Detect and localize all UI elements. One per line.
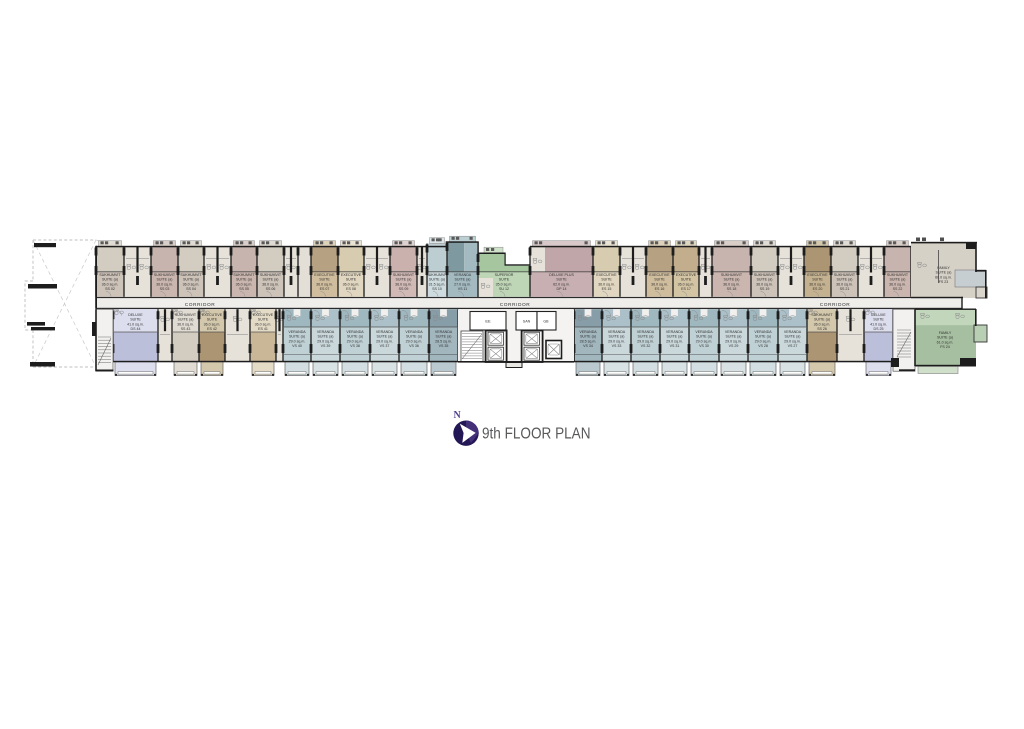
svg-text:SUITE: SUITE (319, 278, 330, 282)
svg-text:EXECUTIVE: EXECUTIVE (807, 273, 828, 277)
svg-text:36.0 sq.m.: 36.0 sq.m. (236, 282, 253, 286)
svg-text:VS 38: VS 38 (350, 344, 360, 348)
svg-text:36.0 sq.m.: 36.0 sq.m. (598, 282, 615, 286)
svg-text:SUITE: SUITE (601, 278, 612, 282)
svg-text:SUITE (a): SUITE (a) (377, 335, 393, 339)
svg-text:ES 07: ES 07 (320, 287, 330, 291)
svg-text:29.0 sq.m.: 29.0 sq.m. (755, 339, 772, 343)
svg-text:VS 36: VS 36 (409, 344, 419, 348)
svg-text:29.0 sq.m.: 29.0 sq.m. (696, 339, 713, 343)
svg-text:SUITE (a): SUITE (a) (936, 271, 952, 275)
svg-text:SUITE: SUITE (681, 278, 692, 282)
svg-text:CORRIDOR: CORRIDOR (500, 302, 531, 308)
svg-text:SAN: SAN (523, 320, 531, 324)
svg-text:VS 31: VS 31 (670, 344, 680, 348)
svg-text:SUITE (a): SUITE (a) (755, 335, 771, 339)
svg-text:SUITE (a): SUITE (a) (638, 335, 654, 339)
svg-text:SUITE: SUITE (499, 278, 510, 282)
svg-text:N: N (454, 410, 462, 421)
svg-text:SUKHUMVIT: SUKHUMVIT (754, 273, 776, 277)
svg-text:VERANDA: VERANDA (288, 330, 306, 334)
svg-text:36.0 sq.m.: 36.0 sq.m. (723, 282, 740, 286)
svg-text:SUITE (a): SUITE (a) (406, 335, 422, 339)
svg-text:VERANDA: VERANDA (579, 330, 597, 334)
svg-text:36.0 sq.m.: 36.0 sq.m. (102, 282, 119, 286)
svg-text:SS 26: SS 26 (817, 327, 827, 331)
svg-text:SUITE (a): SUITE (a) (785, 335, 801, 339)
svg-text:SUITE (a): SUITE (a) (837, 278, 853, 282)
svg-text:SUKHUMVIT: SUKHUMVIT (887, 273, 909, 277)
svg-text:SUITE (a): SUITE (a) (890, 278, 906, 282)
svg-text:SUITE: SUITE (207, 318, 218, 322)
svg-text:SUKHUMVIT: SUKHUMVIT (233, 273, 255, 277)
svg-text:VS 32: VS 32 (641, 344, 651, 348)
svg-text:66.0 sq.m.: 66.0 sq.m. (935, 275, 952, 279)
svg-text:ES 16: ES 16 (655, 287, 665, 291)
svg-text:27.0 sq.m.: 27.0 sq.m. (454, 282, 471, 286)
svg-text:36.0 sq.m.: 36.0 sq.m. (156, 282, 173, 286)
svg-text:SUKHUMVIT: SUKHUMVIT (834, 273, 856, 277)
svg-text:SS 09: SS 09 (399, 287, 409, 291)
svg-text:VERANDA: VERANDA (454, 273, 472, 277)
svg-text:ES 15: ES 15 (602, 287, 612, 291)
svg-text:VS 29: VS 29 (729, 344, 739, 348)
svg-text:SUKHUMVIT: SUKHUMVIT (99, 273, 121, 277)
svg-text:SS 03: SS 03 (160, 287, 170, 291)
svg-text:SUITE (a): SUITE (a) (937, 336, 953, 340)
svg-text:ES 20: ES 20 (813, 287, 823, 291)
svg-text:CORRIDOR: CORRIDOR (185, 302, 216, 308)
svg-text:DELUXE: DELUXE (128, 313, 143, 317)
svg-text:VERANDA: VERANDA (435, 330, 453, 334)
svg-text:SUKHUMVIT: SUKHUMVIT (180, 273, 202, 277)
svg-text:SS 43: SS 43 (181, 327, 191, 331)
svg-text:SUITE (a): SUITE (a) (263, 278, 279, 282)
svg-text:SUPERIOR: SUPERIOR (495, 273, 514, 277)
svg-text:SUITE: SUITE (812, 278, 823, 282)
svg-text:41.0 sq.m.: 41.0 sq.m. (127, 322, 144, 326)
svg-text:36.0 sq.m.: 36.0 sq.m. (678, 282, 695, 286)
svg-text:SUKHUMVIT: SUKHUMVIT (260, 273, 282, 277)
svg-text:DP 14: DP 14 (557, 287, 567, 291)
svg-text:EXECUTIVE: EXECUTIVE (649, 273, 670, 277)
svg-text:SUITE (a): SUITE (a) (102, 278, 118, 282)
svg-text:ES 08: ES 08 (346, 287, 356, 291)
svg-text:SUKHUMVIT: SUKHUMVIT (393, 273, 415, 277)
svg-text:31.5 sq.m.: 31.5 sq.m. (429, 282, 446, 286)
svg-text:SUITE: SUITE (130, 318, 141, 322)
svg-text:SUKHUMVIT: SUKHUMVIT (811, 313, 833, 317)
svg-text:29.0 sq.m.: 29.0 sq.m. (317, 339, 334, 343)
svg-text:SS 18: SS 18 (727, 287, 737, 291)
svg-text:36.0 sq.m.: 36.0 sq.m. (651, 282, 668, 286)
svg-text:EE: EE (485, 319, 491, 324)
svg-text:VS 40: VS 40 (292, 344, 302, 348)
svg-text:SUITE (a): SUITE (a) (724, 278, 740, 282)
svg-text:SUITE (a): SUITE (a) (183, 278, 199, 282)
svg-text:SUITE: SUITE (346, 278, 357, 282)
svg-text:29.0 sq.m.: 29.0 sq.m. (608, 339, 625, 343)
svg-text:VS 27: VS 27 (788, 344, 798, 348)
svg-text:SUITE (a): SUITE (a) (178, 318, 194, 322)
svg-text:36.0 sq.m.: 36.0 sq.m. (395, 282, 412, 286)
svg-text:SUITE: SUITE (556, 278, 567, 282)
svg-text:VERANDA: VERANDA (405, 330, 423, 334)
svg-text:VS 11: VS 11 (458, 287, 468, 291)
svg-text:36.0 sq.m.: 36.0 sq.m. (343, 282, 360, 286)
svg-text:ES 42: ES 42 (207, 327, 217, 331)
svg-text:SUITE (a): SUITE (a) (814, 318, 830, 322)
svg-text:36.0 sq.m.: 36.0 sq.m. (204, 322, 221, 326)
svg-text:29.0 sq.m.: 29.0 sq.m. (637, 339, 654, 343)
svg-text:SUITE (a): SUITE (a) (580, 335, 596, 339)
svg-text:36.0 sq.m.: 36.0 sq.m. (836, 282, 853, 286)
svg-text:SS 05: SS 05 (239, 287, 249, 291)
svg-text:VERANDA: VERANDA (754, 330, 772, 334)
svg-text:DS 25: DS 25 (874, 327, 884, 331)
svg-text:36.0 sq.m.: 36.0 sq.m. (262, 282, 279, 286)
svg-text:SUITE (a): SUITE (a) (436, 335, 452, 339)
svg-text:29.0 sq.m.: 29.0 sq.m. (666, 339, 683, 343)
svg-text:SUITE (a): SUITE (a) (667, 335, 683, 339)
svg-text:DELUXE PLUS: DELUXE PLUS (549, 273, 574, 277)
svg-text:SU 12: SU 12 (499, 287, 509, 291)
svg-text:36.0 sq.m.: 36.0 sq.m. (889, 282, 906, 286)
svg-text:36.0 sq.m.: 36.0 sq.m. (177, 322, 194, 326)
svg-text:28.5 sq.m.: 28.5 sq.m. (580, 339, 597, 343)
svg-text:VS 39: VS 39 (321, 344, 331, 348)
svg-text:SUITE (a): SUITE (a) (696, 335, 712, 339)
svg-text:FAMILY: FAMILY (937, 266, 950, 270)
svg-text:VERANDA: VERANDA (784, 330, 802, 334)
svg-text:VERANDA: VERANDA (376, 330, 394, 334)
svg-text:FS 23: FS 23 (939, 280, 949, 284)
svg-text:SUITE (a): SUITE (a) (236, 278, 252, 282)
svg-text:EXECUTIVE: EXECUTIVE (202, 313, 223, 317)
svg-text:SS 21: SS 21 (840, 287, 850, 291)
svg-text:SS 19: SS 19 (760, 287, 770, 291)
svg-text:29.0 sq.m.: 29.0 sq.m. (725, 339, 742, 343)
svg-text:SS 06: SS 06 (266, 287, 276, 291)
svg-text:SUKHUMVIT: SUKHUMVIT (154, 273, 176, 277)
svg-text:VERANDA: VERANDA (637, 330, 655, 334)
svg-text:DELUXE: DELUXE (871, 313, 886, 317)
svg-text:SUKHUMVIT: SUKHUMVIT (721, 273, 743, 277)
svg-text:SUITE: SUITE (873, 318, 884, 322)
svg-text:SUITE: SUITE (654, 278, 665, 282)
svg-text:SUITE (a): SUITE (a) (289, 335, 305, 339)
svg-text:VERANDA: VERANDA (666, 330, 684, 334)
svg-text:FS 24: FS 24 (940, 345, 950, 349)
svg-text:SUITE (a): SUITE (a) (726, 335, 742, 339)
svg-text:SUITE (a): SUITE (a) (157, 278, 173, 282)
svg-text:36.0 sq.m.: 36.0 sq.m. (255, 322, 272, 326)
svg-text:VS 34: VS 34 (583, 344, 593, 348)
svg-text:ES 41: ES 41 (258, 327, 268, 331)
svg-text:9th FLOOR PLAN: 9th FLOOR PLAN (482, 425, 591, 442)
svg-text:SUKHUMVIT: SUKHUMVIT (175, 313, 197, 317)
svg-text:EXECUTIVE: EXECUTIVE (596, 273, 617, 277)
svg-text:35.0 sq.m.: 35.0 sq.m. (496, 282, 513, 286)
svg-text:VERANDA: VERANDA (725, 330, 743, 334)
svg-text:VS 35: VS 35 (439, 344, 449, 348)
svg-text:61.0 sq.m.: 61.0 sq.m. (937, 340, 954, 344)
svg-text:SUKHUMVIT: SUKHUMVIT (426, 273, 448, 277)
svg-text:SUITE (a): SUITE (a) (318, 335, 334, 339)
svg-text:GB: GB (543, 320, 549, 324)
svg-text:36.0 sq.m.: 36.0 sq.m. (183, 282, 200, 286)
svg-text:29.0 sq.m.: 29.0 sq.m. (289, 339, 306, 343)
svg-text:VERANDA: VERANDA (317, 330, 335, 334)
svg-text:SUITE (a): SUITE (a) (396, 278, 412, 282)
svg-text:SUITE (a): SUITE (a) (347, 335, 363, 339)
svg-text:SUITE (a): SUITE (a) (609, 335, 625, 339)
svg-text:29.0 sq.m.: 29.0 sq.m. (406, 339, 423, 343)
svg-text:SS 02: SS 02 (105, 287, 115, 291)
svg-text:SUITE (a): SUITE (a) (757, 278, 773, 282)
svg-text:EXECUTIVE: EXECUTIVE (314, 273, 335, 277)
svg-text:EXECUTIVE: EXECUTIVE (253, 313, 274, 317)
svg-text:FAMILY: FAMILY (939, 331, 952, 335)
svg-text:36.0 sq.m.: 36.0 sq.m. (756, 282, 773, 286)
svg-text:EXECUTIVE: EXECUTIVE (676, 273, 697, 277)
svg-text:29.0 sq.m.: 29.0 sq.m. (376, 339, 393, 343)
svg-text:CORRIDOR: CORRIDOR (820, 302, 851, 308)
svg-text:SUITE: SUITE (258, 318, 269, 322)
svg-text:62.0 sq.m.: 62.0 sq.m. (553, 282, 570, 286)
svg-text:VS 33: VS 33 (612, 344, 622, 348)
svg-text:SS 10: SS 10 (432, 287, 442, 291)
svg-text:36.0 sq.m.: 36.0 sq.m. (809, 282, 826, 286)
svg-text:DS 44: DS 44 (131, 327, 141, 331)
svg-text:EXECUTIVE: EXECUTIVE (341, 273, 362, 277)
svg-text:VS 28: VS 28 (758, 344, 768, 348)
svg-text:VERANDA: VERANDA (695, 330, 713, 334)
svg-text:29.0 sq.m.: 29.0 sq.m. (784, 339, 801, 343)
svg-text:28.5 sq.m.: 28.5 sq.m. (435, 339, 452, 343)
svg-text:VERANDA: VERANDA (346, 330, 364, 334)
svg-text:36.0 sq.m.: 36.0 sq.m. (814, 322, 831, 326)
svg-text:36.0 sq.m.: 36.0 sq.m. (316, 282, 333, 286)
svg-text:VS 37: VS 37 (380, 344, 390, 348)
svg-text:VERANDA: VERANDA (608, 330, 626, 334)
svg-text:SUITE (a): SUITE (a) (455, 278, 471, 282)
svg-text:29.0 sq.m.: 29.0 sq.m. (347, 339, 364, 343)
svg-text:SS 22: SS 22 (893, 287, 903, 291)
svg-text:SUITE (a): SUITE (a) (429, 278, 445, 282)
svg-text:VS 30: VS 30 (699, 344, 709, 348)
svg-text:41.0 sq.m.: 41.0 sq.m. (870, 322, 887, 326)
svg-text:ES 17: ES 17 (681, 287, 691, 291)
svg-text:SS 04: SS 04 (186, 287, 196, 291)
